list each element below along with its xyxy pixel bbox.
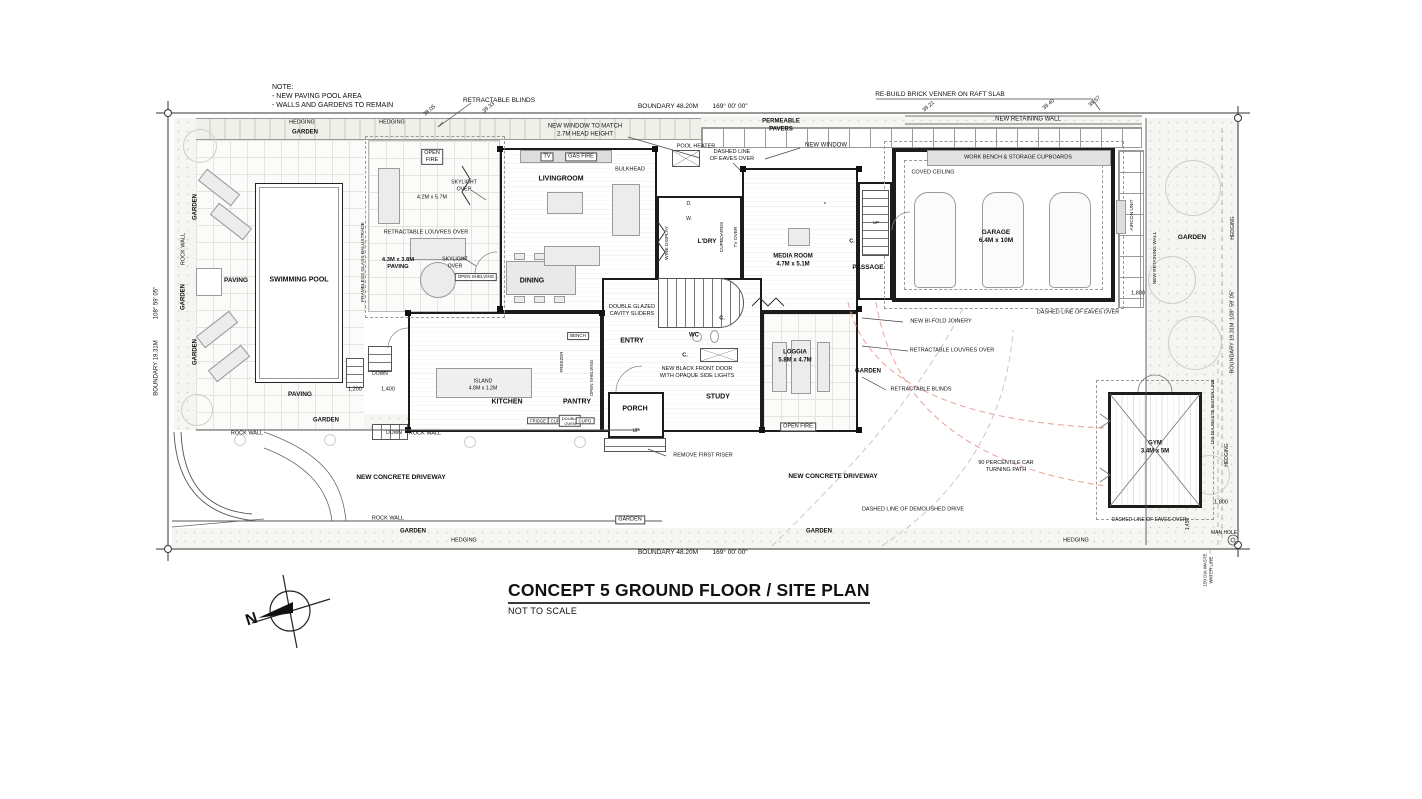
boundary-top-length: BOUNDARY 48.20M	[638, 103, 698, 111]
tree	[181, 394, 213, 426]
media-ottoman	[788, 228, 810, 246]
skylight-label-1: SKYLIGHT OVER	[451, 180, 477, 193]
dining-label: DINING	[520, 278, 545, 287]
car-turning-path	[848, 302, 1106, 486]
garden-bottomleft: GARDEN	[313, 417, 339, 425]
spot-level-5: 39.57	[1088, 95, 1103, 109]
hedging-top-2: HEDGING	[379, 120, 405, 127]
spot-level-4: 39.40	[1042, 98, 1057, 112]
dining-chair	[554, 296, 565, 303]
car-outline-1	[914, 192, 956, 288]
paving-label-2: PAVING	[288, 391, 312, 399]
garden-right-label: GARDEN	[1178, 234, 1206, 242]
site-plan-canvas: NOTE: - NEW PAVING POOL AREA - WALLS AND…	[0, 0, 1422, 799]
wall-pier	[497, 306, 503, 312]
hedging-right-1: HEDGING	[1230, 216, 1236, 239]
north-compass	[252, 575, 330, 648]
louvres-terrace-label: RETRACTABLE LOUVRES OVER	[384, 230, 469, 237]
pool-side-table	[196, 268, 222, 296]
black-door-label: NEW BLACK FRONT DOOR WITH OPAQUE SIDE LI…	[660, 366, 734, 380]
hedging-top-1: HEDGING	[289, 120, 315, 127]
compass-needle	[258, 602, 293, 618]
work-bench-label: WORK BENCH & STORAGE CUPBOARDS	[964, 155, 1072, 162]
porch-label: PORCH	[622, 406, 647, 415]
media-room-label: MEDIA ROOM 4.7M x 5.1M	[773, 254, 812, 269]
boundary-bottom-angle: 169° 00' 00"	[712, 549, 747, 557]
garden-top-label: GARDEN	[292, 129, 318, 137]
hedging-right-2: HEDGING	[1224, 443, 1230, 466]
drawing-scale-note: NOT TO SCALE	[508, 606, 870, 616]
wc-vanity	[700, 348, 738, 362]
boundary-right-angle: 108° 59' 05"	[1230, 290, 1237, 320]
wall-pier	[599, 310, 605, 316]
aircon-unit	[1116, 200, 1126, 234]
blinds-right-label: RETRACTABLE BLINDS	[890, 387, 951, 394]
dining-chair	[514, 253, 525, 260]
entry-stair	[658, 278, 744, 328]
note-text: NOTE: - NEW PAVING POOL AREA - WALLS AND…	[272, 84, 393, 110]
dryer-label: D.	[687, 201, 692, 207]
garden-bottom-2: GARDEN	[806, 528, 832, 536]
rock-wall-left: ROCK WALL	[181, 233, 188, 265]
down-label-2: DOWN	[386, 430, 402, 436]
living-sofa-1	[612, 184, 640, 236]
closet-label-1: C.	[682, 353, 688, 360]
frameless-balustrade-label: FRAMELESS GLASS BALUSTRADE	[361, 222, 367, 302]
toilet	[710, 330, 719, 343]
livingroom-label: LIVINGROOM	[538, 176, 583, 185]
boundary-right-length: BOUNDARY 19.31M	[1230, 323, 1237, 374]
drawing-title: CONCEPT 5 GROUND FLOOR / SITE PLAN	[508, 580, 870, 604]
swimming-pool-label: SWIMMING POOL	[269, 277, 328, 286]
louvres-right-label: RETRACTABLE LOUVRES OVER	[910, 348, 995, 355]
wall-pier	[497, 146, 503, 152]
loggia-bench-right	[817, 342, 830, 392]
ldry-label: L'DRY	[698, 238, 717, 246]
driveway-label-1: NEW CONCRETE DRIVEWAY	[356, 474, 445, 482]
open-fire-terrace: OPEN FIRE	[421, 149, 443, 165]
terrace-sofa-1	[378, 168, 400, 224]
island-label: ISLAND 4.8M x 1.2M	[469, 379, 498, 392]
bulkhead-label: BULKHEAD	[615, 167, 645, 174]
garden-strip-left	[174, 118, 196, 430]
paving-table-label: 4.3M x 3.8M PAVING	[382, 257, 414, 271]
garden-box-label: GARDEN	[615, 515, 645, 524]
washer-label: W.	[686, 216, 692, 222]
gas-fire-label: GAS FIRE	[565, 152, 597, 161]
wall-pier	[856, 427, 862, 433]
boundary-left-length: BOUNDARY 19.31M	[153, 340, 161, 395]
retractable-blinds-top-label: RETRACTABLE BLINDS	[463, 97, 535, 105]
coved-ceiling-label: COVED CEILING	[911, 170, 954, 177]
car-outline-3	[1049, 192, 1091, 288]
new-window-match-label: NEW WINDOW TO MATCH 2.7M HEAD HEIGHT	[548, 124, 622, 139]
closet-label-3: C.	[849, 239, 855, 246]
garden-bottom-1: GARDEN	[400, 528, 426, 536]
permeable-pavers-label: PERMEABLE PAVERS	[762, 119, 800, 134]
dim-1800-gym: 1,800	[1214, 500, 1228, 507]
passage-label: PASSAGE	[852, 264, 883, 272]
dining-chair	[534, 296, 545, 303]
tree	[183, 129, 217, 163]
open-shelving-2: OPEN SHELVING	[589, 360, 595, 396]
dim-terrace: 4.2M x 5.7M	[417, 195, 447, 202]
boundary-top-angle: 169° 00' 00"	[712, 103, 747, 111]
wall-pier	[652, 146, 658, 152]
pantry-label: PANTRY	[563, 399, 591, 408]
cupboards-label: CUPBOARDS	[720, 222, 726, 252]
loggia-table	[791, 340, 811, 394]
demolished-drive-label: DASHED LINE OF DEMOLISHED DRIVE	[862, 507, 964, 514]
hedging-bottom-2: HEDGING	[1063, 538, 1089, 545]
wc-label: WC	[689, 332, 699, 340]
boundary-left-angle: 108° 59' 05"	[153, 287, 161, 319]
paving-label-1: PAVING	[224, 277, 248, 285]
dim-1800-garage: 1,800	[1131, 291, 1145, 298]
dim-1450: 1,450	[1185, 518, 1191, 531]
rock-wall-bottom-1: ROCK WALL	[231, 431, 263, 438]
title-block: CONCEPT 5 GROUND FLOOR / SITE PLAN NOT T…	[508, 580, 870, 616]
garden-left-1: GARDEN	[192, 194, 200, 220]
garden-strip-label: GARDEN	[855, 368, 881, 376]
waste-line-label-2: 150 DIA WASTE WATER LINE	[1202, 553, 1213, 586]
aircon-label: AIRCON UNIT	[1130, 199, 1136, 230]
boundary-bottom-length: BOUNDARY 48.20M	[638, 549, 698, 557]
cupd-label-2: CUP'D	[576, 417, 595, 424]
rock-wall-bottom-2: ROCK WALL	[409, 431, 441, 438]
media-sofa	[824, 202, 826, 204]
eaves-top-label: DASHED LINE OF EAVES OVER	[710, 149, 754, 163]
wall-pier	[856, 306, 862, 312]
wall-pier	[856, 166, 862, 172]
rock-wall-bottom-3: ROCK WALL	[372, 516, 404, 523]
wall-pier	[759, 427, 765, 433]
double-glazed-label: DOUBLE GLAZED CAVITY SLIDERS	[609, 304, 655, 318]
garage-label: GARAGE 6.4M x 10M	[979, 229, 1013, 245]
retaining-right-label: NEW RETAINING WALL	[1153, 232, 1159, 285]
compass-north-letter: N	[244, 610, 261, 631]
pool-steps	[346, 358, 364, 388]
open-shelving-1: OPEN SHELVING	[455, 273, 497, 281]
spot-level-3: 39.21	[922, 100, 937, 114]
man-hole-label: MAN HOLE	[1211, 530, 1237, 536]
gym-label: GYM 3.4M x 5M	[1141, 441, 1169, 456]
freezer-label: FREEZER	[559, 351, 565, 372]
living-sofa-2	[544, 246, 600, 266]
porch-steps	[604, 438, 666, 452]
tree	[1165, 160, 1221, 216]
up-porch-label: UP	[633, 428, 640, 434]
closet-label-2: C.	[719, 316, 725, 323]
tv-over-label: TV OVER	[734, 226, 740, 247]
shrub	[574, 436, 586, 448]
eaves-gym-label: DASHED LINE OF EAVES OVER	[1112, 517, 1187, 523]
pool-heater-unit	[672, 150, 700, 167]
skylight-label-2: SKYLIGHT OVER	[442, 257, 468, 270]
tv-label: TV	[540, 152, 553, 161]
dim-1200: 1,200	[348, 387, 362, 394]
wine-display-label: WINE DISPLAY	[665, 226, 671, 260]
hedging-bottom-1: HEDGING	[451, 538, 477, 545]
up-stair-label: UP	[873, 221, 880, 227]
entry-label: ENTRY	[620, 338, 643, 347]
shrub	[464, 436, 476, 448]
kitchen-label: KITCHEN	[491, 399, 522, 408]
open-fire-loggia: OPEN FIRE	[780, 422, 816, 431]
remove-riser-label: REMOVE FIRST RISER	[673, 453, 733, 460]
waste-line-label: 150 DIA WASTE WATER LINE	[1211, 379, 1217, 444]
driveway-label-2: NEW CONCRETE DRIVEWAY	[788, 473, 877, 481]
loggia-label: LOGGIA 5.8M x 4.7M	[778, 350, 811, 365]
wall-pier	[740, 166, 746, 172]
living-coffee-table	[547, 192, 583, 214]
dining-chair	[514, 296, 525, 303]
driveway-entry-curves	[172, 432, 346, 527]
dim-1400: 1,400	[381, 387, 395, 394]
bifold-label: NEW BI-FOLD JOINERY	[910, 319, 971, 326]
rebuild-brick-label: RE-BUILD BRICK VENNER ON RAFT SLAB	[875, 91, 1005, 99]
down-label-1: DOWN	[372, 371, 388, 377]
turning-path-label: 90 PERCENTILE CAR TURNING PATH	[978, 460, 1033, 474]
shrub	[324, 434, 336, 446]
study-label: STUDY	[706, 394, 730, 403]
eaves-garage-label: DASHED LINE OF EAVES OVER	[1037, 310, 1119, 317]
new-retaining-wall-top-label: NEW RETAINING WALL	[995, 116, 1061, 124]
deck-steps	[368, 346, 392, 372]
garden-left-3: GARDEN	[192, 339, 200, 365]
new-window-top-label: NEW WINDOW	[805, 142, 847, 150]
spot-level-1: 39.05	[423, 104, 438, 118]
bench-label: BENCH	[567, 332, 589, 340]
tree	[1168, 316, 1222, 370]
garden-left-2: GARDEN	[180, 284, 188, 310]
fridge-label: FRIDGE	[527, 417, 549, 424]
wall-pier	[405, 310, 411, 316]
